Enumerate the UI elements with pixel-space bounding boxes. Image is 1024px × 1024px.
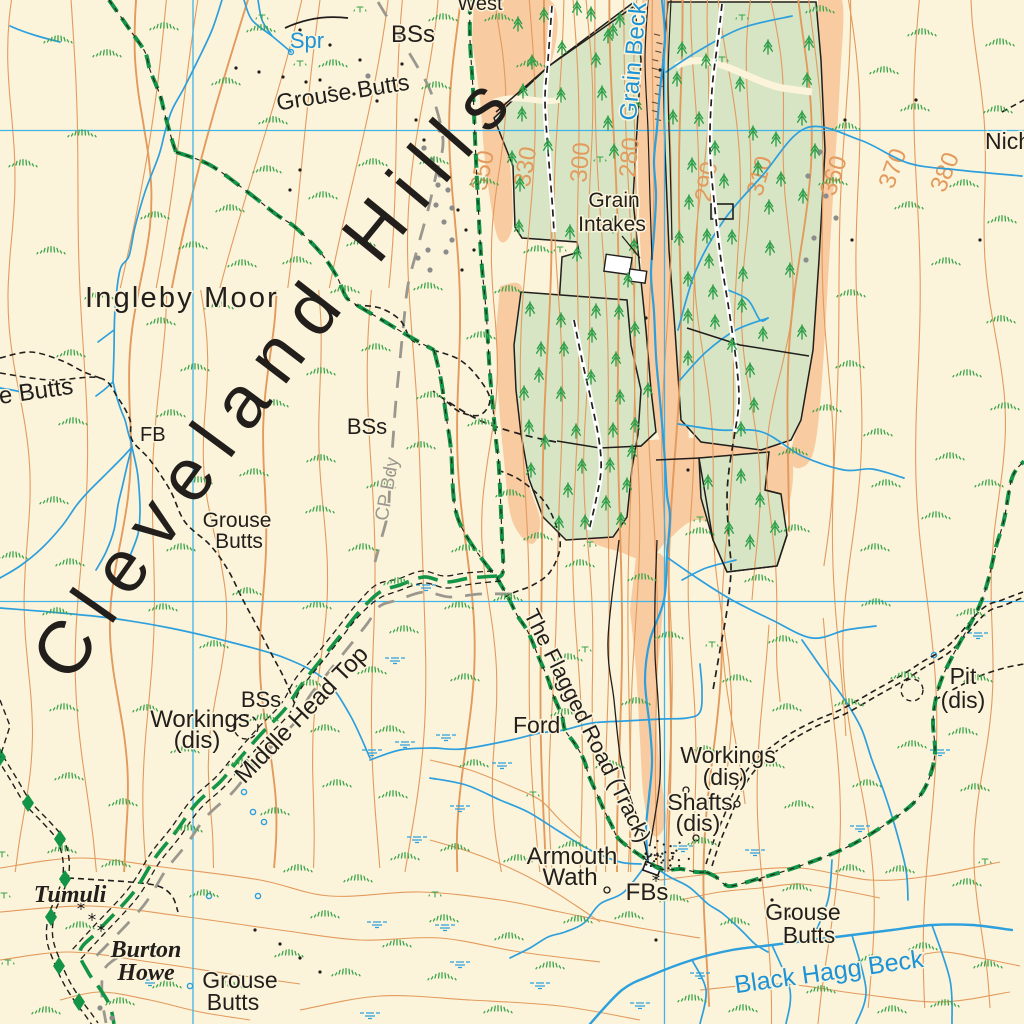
svg-text:FBs: FBs xyxy=(626,879,669,906)
svg-text:Ingleby Moor: Ingleby Moor xyxy=(85,282,279,314)
svg-text:(dis): (dis) xyxy=(941,687,986,713)
svg-text:Butts: Butts xyxy=(783,922,835,948)
svg-text:West: West xyxy=(457,0,503,15)
svg-text:Grain: Grain xyxy=(588,189,639,212)
svg-text:(dis): (dis) xyxy=(174,727,221,754)
svg-text:(dis): (dis) xyxy=(703,764,748,790)
svg-text:Butts: Butts xyxy=(207,989,259,1015)
svg-text:300: 300 xyxy=(565,141,595,183)
svg-text:BSs: BSs xyxy=(391,21,435,48)
svg-text:Tumuli: Tumuli xyxy=(34,882,107,908)
svg-text:Spr: Spr xyxy=(290,28,324,53)
svg-text:Intakes: Intakes xyxy=(578,213,646,236)
svg-text:BSs: BSs xyxy=(347,414,387,439)
svg-text:Ford: Ford xyxy=(513,712,560,738)
svg-text:280: 280 xyxy=(614,136,644,178)
svg-text:BSs: BSs xyxy=(241,687,281,712)
svg-text:Howe: Howe xyxy=(116,960,175,986)
svg-text:Pit: Pit xyxy=(950,663,977,689)
svg-text:Nich: Nich xyxy=(985,128,1024,154)
svg-text:Butts: Butts xyxy=(215,530,263,553)
svg-text:(dis): (dis) xyxy=(676,810,721,836)
svg-text:Grouse: Grouse xyxy=(203,509,272,532)
svg-text:Wath: Wath xyxy=(542,864,597,891)
